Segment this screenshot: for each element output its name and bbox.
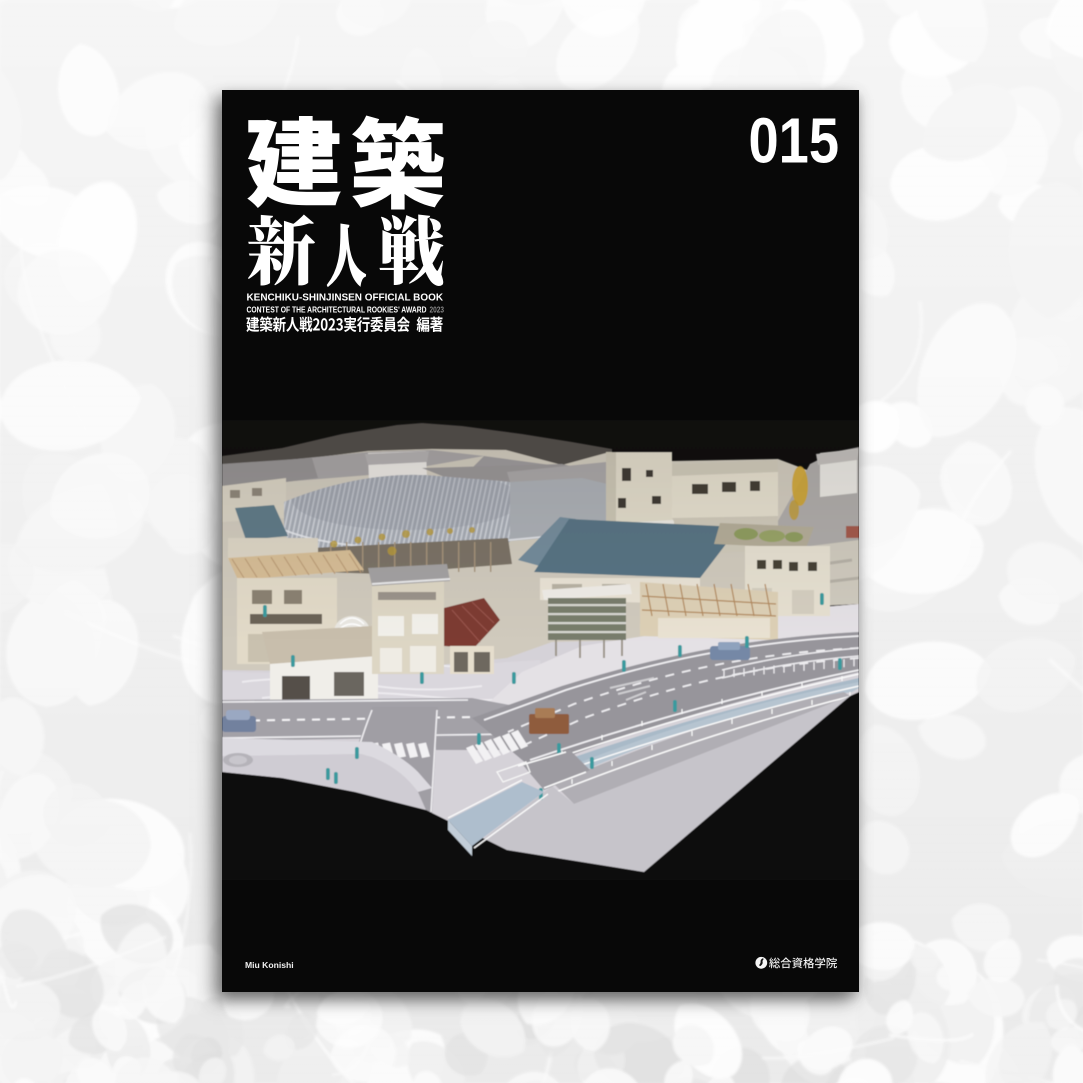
svg-text:KENCHIKU-SHINJINSEN OFFICIAL B: KENCHIKU-SHINJINSEN OFFICIAL BOOK (247, 293, 444, 304)
svg-text:CONTEST OF THE ARCHITECTURAL R: CONTEST OF THE ARCHITECTURAL ROOKIES' AW… (247, 305, 427, 315)
svg-text:Miu Konishi: Miu Konishi (245, 960, 294, 970)
svg-text:015: 015 (749, 105, 840, 177)
svg-text:2023: 2023 (430, 305, 445, 315)
